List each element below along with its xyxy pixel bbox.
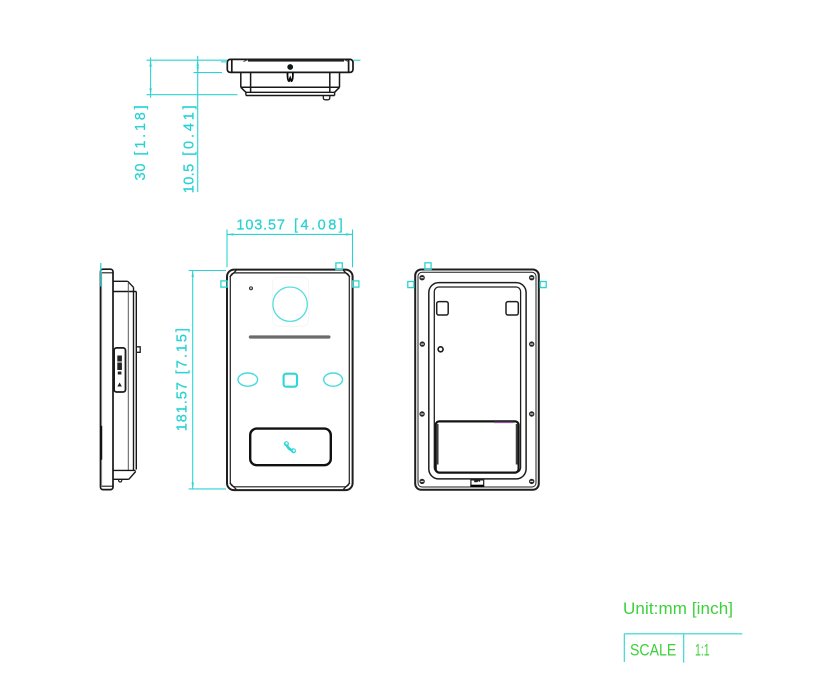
svg-text:1:1: 1:1 — [695, 640, 710, 659]
svg-text:10.5: 10.5 — [181, 164, 197, 194]
svg-text:[7.15]: [7.15] — [175, 328, 191, 374]
svg-text:SCALE: SCALE — [630, 641, 676, 659]
svg-text:181.57: 181.57 — [175, 382, 191, 431]
svg-text:[1.18]: [1.18] — [133, 105, 149, 155]
svg-text:30: 30 — [133, 164, 149, 181]
svg-text:Unit:mm [inch]: Unit:mm [inch] — [623, 599, 733, 618]
svg-text:[4.08]: [4.08] — [294, 218, 343, 234]
svg-text:103.57: 103.57 — [236, 218, 285, 234]
svg-text:[0.41]: [0.41] — [181, 105, 197, 156]
